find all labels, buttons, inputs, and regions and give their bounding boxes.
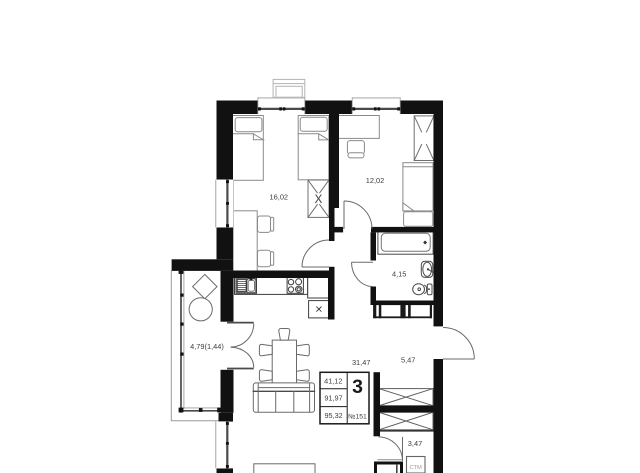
svg-text:95,32: 95,32 — [324, 411, 342, 420]
svg-text:12,02: 12,02 — [366, 176, 385, 185]
svg-text:91,97: 91,97 — [324, 394, 342, 403]
svg-text:4,15: 4,15 — [392, 269, 406, 278]
svg-text:16,02: 16,02 — [270, 192, 289, 201]
svg-text:3,47: 3,47 — [408, 439, 422, 448]
svg-text:СТМ: СТМ — [410, 465, 423, 471]
svg-text:41,12: 41,12 — [324, 377, 342, 386]
svg-text:4,79(1,44): 4,79(1,44) — [190, 342, 224, 351]
svg-text:5,47: 5,47 — [401, 356, 415, 365]
svg-text:3: 3 — [352, 376, 363, 398]
svg-text:X: X — [315, 194, 323, 206]
svg-text:№151: №151 — [348, 413, 367, 420]
svg-text:31,47: 31,47 — [352, 358, 371, 367]
